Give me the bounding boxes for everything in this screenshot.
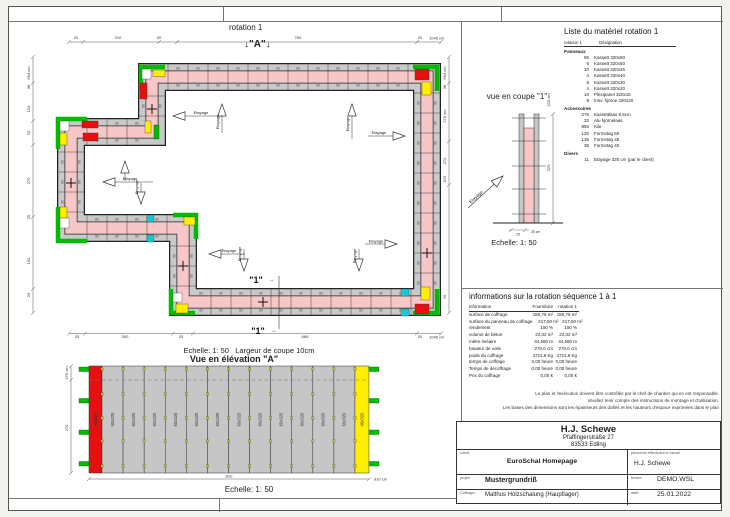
plan-view: 6060606060606060606060606060606060606060… xyxy=(13,21,463,356)
panel-size-label: 60 xyxy=(396,84,400,88)
wall-band xyxy=(71,77,427,302)
disclaimer-line-2: Veuillez tenir compte des instructions d… xyxy=(471,398,719,405)
tie-dot xyxy=(164,368,166,370)
section-marker-1: "1" xyxy=(249,275,263,285)
yellow-panel-piece xyxy=(60,133,67,145)
panel-size-label: 60 xyxy=(173,254,177,258)
tie-dot xyxy=(269,417,271,419)
info-cell: 270,0 cm xyxy=(527,346,553,353)
yellow-panel-piece xyxy=(176,304,188,313)
etayage-label: Etayage xyxy=(194,110,209,115)
material-rows: Panneaux95Kassett 320x606Kassett 320x501… xyxy=(564,49,716,164)
elevation-panel-label: 60x320 xyxy=(152,412,157,426)
panel-size-label: 60 xyxy=(417,141,421,145)
panel-size-label: 60 xyxy=(376,67,380,71)
tie-dot xyxy=(101,417,103,419)
panel-size-label: 60 xyxy=(135,235,139,239)
material-qty: 11 xyxy=(564,157,594,163)
elevation-panel-label: 60x320 xyxy=(300,412,305,426)
panel-size-label: 60 xyxy=(95,235,99,239)
info-cell: 0,00 heure xyxy=(553,366,577,373)
panel-size-label: 60 xyxy=(155,235,159,239)
info-table-title: informations sur la rotation séquence 1 … xyxy=(469,292,723,301)
tie-dot xyxy=(185,465,187,467)
panel-size-label: 60 xyxy=(434,121,438,125)
elevation-panel-label: 60x320 xyxy=(93,412,98,426)
tie-dot xyxy=(143,368,145,370)
tie-dot xyxy=(269,440,271,442)
tie-dot xyxy=(291,393,293,395)
panel-size-label: 60 xyxy=(316,84,320,88)
panel-size-label: 60 xyxy=(336,67,340,71)
info-cell: 180,79 m² xyxy=(553,312,577,319)
title-block: H.J. Schewe Pfaffingerstraße 27 83533 Ed… xyxy=(456,421,721,504)
elevation-panel-label: 60x320 xyxy=(173,412,178,426)
company-address-1: Pfaffingerstraße 27 xyxy=(457,435,720,441)
dim-label: 20 xyxy=(74,35,79,40)
clamp-left xyxy=(79,430,89,435)
panel-size-label: 60 xyxy=(199,292,203,296)
panel-size-label: 60 xyxy=(176,67,180,71)
cyan-panel-piece xyxy=(147,235,154,242)
etayage-arrow xyxy=(348,104,356,116)
red-panel-piece xyxy=(82,121,98,128)
cyan-panel-piece xyxy=(401,289,409,296)
material-list: Liste du matériel rotation 1 rotation 1 … xyxy=(564,27,716,163)
dim-label: 300 xyxy=(122,334,129,339)
etayage-label: Etayage xyxy=(352,248,357,263)
concrete-wall xyxy=(524,128,534,223)
etayage-label: Etayage xyxy=(369,239,384,244)
etayage-arrow xyxy=(209,250,221,258)
elevation-panel-label: 60x320 xyxy=(236,412,241,426)
tie-dot xyxy=(312,465,314,467)
date-value: 25.01.2022 xyxy=(657,491,691,498)
tie-dot xyxy=(101,368,103,370)
tie-dot xyxy=(291,465,293,467)
tie-dot xyxy=(206,417,208,419)
material-qty: 8 xyxy=(564,98,594,104)
panel-size-label: 60 xyxy=(434,201,438,205)
tie-dot xyxy=(164,417,166,419)
clamp-right xyxy=(369,462,379,467)
tie-dot xyxy=(227,417,229,419)
info-cell: mètre linéaire xyxy=(469,339,527,346)
panel-size-label: 60 xyxy=(434,221,438,225)
material-row: 35Formstag 40 xyxy=(564,143,716,149)
rotation-info-table: informations sur la rotation séquence 1 … xyxy=(469,292,723,380)
disclaimer-line-3: Les bases des dimensions sont les épaiss… xyxy=(471,405,719,412)
info-cell: poids du coffrage xyxy=(469,353,527,360)
etayage-label: Etayage xyxy=(215,114,220,129)
panel-size-label: 60 xyxy=(135,218,139,222)
panel-size-label: 60 xyxy=(356,84,360,88)
tie-dot xyxy=(354,465,356,467)
tie-dot xyxy=(333,417,335,419)
tie-dot xyxy=(269,368,271,370)
etayage-label: Etayage xyxy=(468,189,484,204)
tie-dot xyxy=(227,368,229,370)
cyan-panel-piece xyxy=(401,309,409,316)
project-value: Mustergrundriß xyxy=(485,477,537,484)
panel-size-label: 60 xyxy=(276,84,280,88)
red-panel-piece xyxy=(415,304,429,314)
dim-label: 134 xyxy=(26,105,31,112)
tie-dot xyxy=(101,440,103,442)
panel-size-label: 60 xyxy=(78,160,82,164)
info-row: mètre linéaire34,580 m34,580 m xyxy=(469,339,723,346)
panel-size-label: 60 xyxy=(279,309,283,313)
material-row: 8Innv. hjörne 320x20 xyxy=(564,98,716,104)
formwork-label: Coffrage: xyxy=(460,491,476,495)
section-marker-1: "1" xyxy=(251,326,265,336)
tie-dot xyxy=(227,440,229,442)
tie-dot xyxy=(164,465,166,467)
tie-dot xyxy=(122,465,124,467)
clamp-right xyxy=(369,430,379,435)
material-list-header: rotation 1 Désignation xyxy=(564,40,676,47)
panel-size-label: 60 xyxy=(417,161,421,165)
formwork-panel-right xyxy=(534,114,539,223)
panel-size-label: 60 xyxy=(319,292,323,296)
panel-size-label: 60 xyxy=(396,67,400,71)
panel-size-label: 60 xyxy=(417,101,421,105)
panel-size-label: 60 xyxy=(216,84,220,88)
client-label: client: xyxy=(460,451,470,455)
worker-value: H.J. Schewe xyxy=(634,460,671,467)
yellow-panel-piece xyxy=(60,207,67,218)
info-cell: 24,02 m³ xyxy=(527,332,553,339)
info-cell: 0,00 heure xyxy=(553,359,577,366)
etayage-arrow xyxy=(121,161,129,173)
material-col-rotation: rotation 1 xyxy=(564,40,582,45)
material-name: Formstag 40 xyxy=(594,143,619,149)
cyan-panel-piece xyxy=(147,215,154,222)
panel-size-label: 60 xyxy=(417,181,421,185)
dim-label: 760 xyxy=(295,35,302,40)
tie-dot xyxy=(354,417,356,419)
panel-size-label: 60 xyxy=(236,67,240,71)
info-row: poids du coffrage4721,9 Kg4721,9 Kg xyxy=(469,353,723,360)
yellow-panel-piece xyxy=(145,121,151,133)
info-cell: 24,02 m³ xyxy=(553,332,577,339)
panel-size-label: 60 xyxy=(434,281,438,285)
tie-dot xyxy=(185,440,187,442)
red-panel-piece xyxy=(140,83,147,99)
panel-size-label: 60 xyxy=(173,274,177,278)
tie-dot xyxy=(101,393,103,395)
panel-size-label: 60 xyxy=(239,309,243,313)
panel-size-label: 60 xyxy=(434,161,438,165)
etayage-label: Etayage xyxy=(372,130,387,135)
disclaimer: Le plan et l'exécution doivent être cont… xyxy=(471,391,719,412)
clamp-right xyxy=(369,399,379,404)
material-qty: 35 xyxy=(564,143,594,149)
dim-label: 25 xyxy=(516,233,520,237)
elevation-panel-label: 60x320 xyxy=(321,412,326,426)
info-cell: 217,60 m² xyxy=(532,319,558,326)
tie-dot xyxy=(227,393,229,395)
tie-dot xyxy=(312,368,314,370)
panel-size-label: 60 xyxy=(135,139,139,143)
section-marker-arrow: → xyxy=(269,277,275,283)
tie-dot xyxy=(185,417,187,419)
info-row: hauteur de voile270,0 cm270,0 cm xyxy=(469,346,723,353)
panel-size-label: 60 xyxy=(256,84,260,88)
info-col-fourniture: Fourniture xyxy=(527,304,553,311)
info-table-header: information Fourniture rotation 1 xyxy=(469,304,579,312)
tie-dot xyxy=(185,393,187,395)
green-panel-piece xyxy=(154,125,159,139)
info-cell: surface de coffrage xyxy=(469,312,527,319)
panel-size-label: 60 xyxy=(196,84,200,88)
dim-label: 270 cm xyxy=(64,366,69,380)
info-cell: 0,00 € xyxy=(553,373,577,380)
dim-label: 20 xyxy=(442,294,447,299)
panel-size-label: 60 xyxy=(61,200,65,204)
info-row: rendement100 %100 % xyxy=(469,325,723,332)
panel-size-label: 60 xyxy=(115,218,119,222)
panel-size-label: 60 xyxy=(417,261,421,265)
dim-label: 38 xyxy=(26,84,31,89)
dim-label: 20 xyxy=(26,292,31,297)
yellow-panel-piece xyxy=(421,287,430,300)
dim-label: 20 xyxy=(418,35,423,40)
panel-size-label: 60 xyxy=(216,67,220,71)
page: rotation 1 ↓"A"↓ vue en coupe "1" Echell… xyxy=(0,0,730,517)
etayage-label: Etayage xyxy=(345,116,350,131)
elevation-panel-label: 60x320 xyxy=(257,412,262,426)
info-cell: 100 % xyxy=(553,325,577,332)
worker-label: personne effectuant le travail xyxy=(631,451,680,455)
formwork-panel-left xyxy=(519,114,524,223)
dim-label: 320 xyxy=(546,164,551,171)
elevation-panel-label: 60x320 xyxy=(342,412,347,426)
panel-size-label: 60 xyxy=(259,309,263,313)
tie-dot xyxy=(122,417,124,419)
info-rows: surface de coffrage180,79 m²180,79 m²sur… xyxy=(469,312,723,380)
corner-post xyxy=(60,218,69,228)
info-row: surface de coffrage180,79 m²180,79 m² xyxy=(469,312,723,319)
info-cell: temps de coffrage xyxy=(469,359,527,366)
disclaimer-line-1: Le plan et l'exécution doivent être cont… xyxy=(471,391,719,398)
panel-size-label: 60 xyxy=(417,241,421,245)
info-cell: 0,00 heure xyxy=(527,359,553,366)
dim-label: 25 cm xyxy=(531,230,540,234)
info-row: Temps de décoffrage0,00 heure0,00 heure xyxy=(469,366,723,373)
panel-size-label: 60 xyxy=(359,292,363,296)
wall-band xyxy=(71,77,427,302)
panel-size-label: 60 xyxy=(190,254,194,258)
panel-size-label: 60 xyxy=(115,122,119,126)
frame-fold-tick-2 xyxy=(501,7,502,21)
tie-dot xyxy=(291,417,293,419)
panel-size-label: 60 xyxy=(135,122,139,126)
info-cell: 180,79 m² xyxy=(527,312,553,319)
elevation-panel-label: 60x320 xyxy=(215,412,220,426)
tie-dot xyxy=(354,440,356,442)
dim-label: 525 xyxy=(442,175,447,182)
section-marker-arrow: → xyxy=(271,328,277,334)
corner-post xyxy=(142,69,151,79)
panel-size-label: 60 xyxy=(199,309,203,313)
panel-size-label: 60 xyxy=(339,309,343,313)
frame-info-top-line xyxy=(461,288,723,289)
info-cell: surface du panneau de coffrage xyxy=(469,319,532,326)
panel-size-label: 60 xyxy=(95,218,99,222)
material-row: 11Etayage 320 cm (par le client) xyxy=(564,157,716,163)
tie-dot xyxy=(291,368,293,370)
panel-size-label: 60 xyxy=(434,141,438,145)
panel-size-label: 60 xyxy=(78,200,82,204)
info-row: volume de béton24,02 m³24,02 m³ xyxy=(469,332,723,339)
tie-dot xyxy=(248,417,250,419)
panel-size-label: 60 xyxy=(236,84,240,88)
panel-size-label: 60 xyxy=(196,67,200,71)
panel-size-label: 60 xyxy=(219,309,223,313)
panel-size-label: 60 xyxy=(336,84,340,88)
tie-dot xyxy=(312,440,314,442)
dim-label: 20 xyxy=(418,334,423,339)
info-cell: rendement xyxy=(469,325,527,332)
etayage-label: Etayage xyxy=(237,246,242,261)
tie-dot xyxy=(333,368,335,370)
panel-size-label: 60 xyxy=(259,292,263,296)
info-cell: hauteur de voile xyxy=(469,346,527,353)
elevation-panel-label: 60x320 xyxy=(194,412,199,426)
panel-size-label: 60 xyxy=(176,84,180,88)
panel-size-label: 60 xyxy=(379,309,383,313)
tie-dot xyxy=(269,393,271,395)
elevation-view: 60x32060x32060x32060x32060x32060x32060x3… xyxy=(41,356,433,512)
dim-label: 25 xyxy=(75,334,80,339)
red-panel-piece xyxy=(415,69,429,80)
tie-dot xyxy=(143,440,145,442)
elevation-panel-label: 40x320 xyxy=(359,412,364,426)
panel-size-label: 60 xyxy=(356,67,360,71)
info-cell: Prix du coffrage xyxy=(469,373,527,380)
tie-dot xyxy=(354,393,356,395)
panel-size-label: 60 xyxy=(299,309,303,313)
tie-dot xyxy=(206,393,208,395)
panel-size-label: 60 xyxy=(434,181,438,185)
dim-label: 664 cm xyxy=(442,66,447,80)
tie-dot xyxy=(206,440,208,442)
wall-band xyxy=(71,77,427,302)
panel-size-label: 60 xyxy=(417,221,421,225)
date-label: date: xyxy=(631,491,639,495)
tie-dot xyxy=(164,393,166,395)
panel-size-label: 60 xyxy=(434,261,438,265)
file-label: fichier: xyxy=(631,476,642,480)
material-col-designation: Désignation xyxy=(599,40,622,45)
panel-size-label: 60 xyxy=(159,104,163,108)
panel-size-label: 60 xyxy=(256,67,260,71)
panel-size-label: 60 xyxy=(417,281,421,285)
clamp-left xyxy=(79,367,89,372)
tie-dot xyxy=(333,440,335,442)
info-cell: volume de béton xyxy=(469,332,527,339)
info-row: Prix du coffrage0,00 €0,00 € xyxy=(469,373,723,380)
red-panel-piece xyxy=(83,133,98,141)
info-row: temps de coffrage0,00 heure0,00 heure xyxy=(469,359,723,366)
info-cell: 270,0 cm xyxy=(553,346,577,353)
panel-size-label: 60 xyxy=(115,235,119,239)
tie-dot xyxy=(227,465,229,467)
panel-size-label: 60 xyxy=(316,67,320,71)
project-label: projet: xyxy=(460,476,471,480)
corner-post xyxy=(173,293,182,302)
panel-size-label: 60 xyxy=(299,292,303,296)
tie-dot xyxy=(312,417,314,419)
yellow-panel-piece xyxy=(422,82,431,95)
tie-dot xyxy=(143,465,145,467)
clamp-left xyxy=(79,462,89,467)
etayage-arrow xyxy=(173,112,185,120)
tie-dot xyxy=(354,368,356,370)
dim-label: 20 xyxy=(157,35,162,40)
info-cell: Temps de décoffrage xyxy=(469,366,527,373)
tie-dot xyxy=(269,465,271,467)
panel-size-label: 60 xyxy=(61,180,65,184)
info-cell: 4721,9 Kg xyxy=(553,353,577,360)
material-name: Etayage 320 cm (par le client) xyxy=(594,157,654,163)
panel-size-label: 60 xyxy=(376,84,380,88)
info-cell: 34,580 m xyxy=(553,339,577,346)
yellow-panel-piece xyxy=(153,70,165,77)
wall-band xyxy=(71,77,427,302)
panel-size-label: 60 xyxy=(319,309,323,313)
etayage-label: Etayage xyxy=(134,179,139,194)
panel-size-label: 60 xyxy=(276,67,280,71)
dim-label: 190 xyxy=(26,257,31,264)
company-name: H.J. Schewe xyxy=(457,424,720,435)
panel-size-label: 60 xyxy=(115,139,119,143)
tie-dot xyxy=(333,393,335,395)
panel-size-label: 60 xyxy=(142,104,146,108)
elevation-panel-label: 60x320 xyxy=(110,412,115,426)
info-cell: 0,00 heure xyxy=(527,366,553,373)
tie-dot xyxy=(248,465,250,467)
dim-label: 810 xyxy=(226,474,233,479)
panel-size-label: 60 xyxy=(339,292,343,296)
etayage-arrow xyxy=(103,178,115,186)
dim-label: 270 xyxy=(26,177,31,184)
info-cell: 4721,9 Kg xyxy=(527,353,553,360)
clamp-left xyxy=(79,399,89,404)
info-row: surface du panneau de coffrage217,60 m²2… xyxy=(469,319,723,326)
tie-dot xyxy=(122,368,124,370)
dim-label: 270 xyxy=(64,424,69,431)
elevation-panel-label: 60x320 xyxy=(131,412,136,426)
tie-dot xyxy=(122,393,124,395)
tie-dot xyxy=(143,417,145,419)
info-cell: 217,60 m² xyxy=(558,319,582,326)
dim-label: 270 xyxy=(442,157,447,164)
drawing-sheet: rotation 1 ↓"A"↓ vue en coupe "1" Echell… xyxy=(8,6,722,511)
tie-dot xyxy=(248,368,250,370)
dim-label: 664 cm xyxy=(26,66,31,80)
panel-size-label: 60 xyxy=(296,67,300,71)
clamp-right xyxy=(369,367,379,372)
panel-size-label: 60 xyxy=(239,292,243,296)
tie-dot xyxy=(248,440,250,442)
material-list-title: Liste du matériel rotation 1 xyxy=(564,27,716,36)
file-value: DEMO.WSL xyxy=(657,476,694,483)
panel-size-label: 60 xyxy=(155,218,159,222)
dim-label: 20 xyxy=(26,130,31,135)
etayage-arrow xyxy=(385,240,397,248)
